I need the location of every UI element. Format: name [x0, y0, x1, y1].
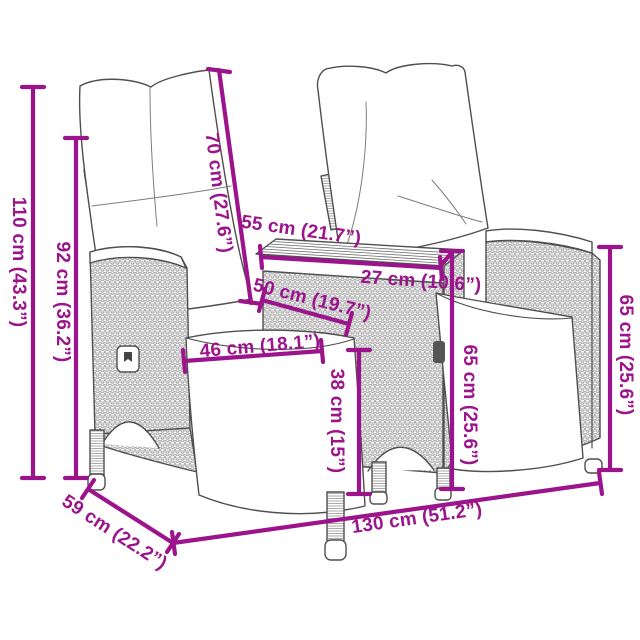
dim-label-back-height: 92 cm (36.2”) — [51, 242, 73, 363]
left-armrest-panel — [90, 247, 190, 436]
dim-label-total-height: 110 cm (43.3”) — [7, 197, 29, 328]
dim-label-table-height: 65 cm (25.6”) — [458, 345, 480, 466]
furniture-illustration — [0, 0, 640, 640]
dimension-diagram: 110 cm (43.3”) 92 cm (36.2”) 70 cm (27.6… — [0, 0, 640, 640]
right-recline-lever — [433, 341, 445, 363]
dim-label-armrest-height: 65 cm (25.6”) — [614, 295, 636, 416]
table-leg — [372, 462, 386, 496]
left-front-leg — [90, 430, 104, 478]
dim-label-seat-height: 38 cm (15”) — [325, 369, 347, 474]
